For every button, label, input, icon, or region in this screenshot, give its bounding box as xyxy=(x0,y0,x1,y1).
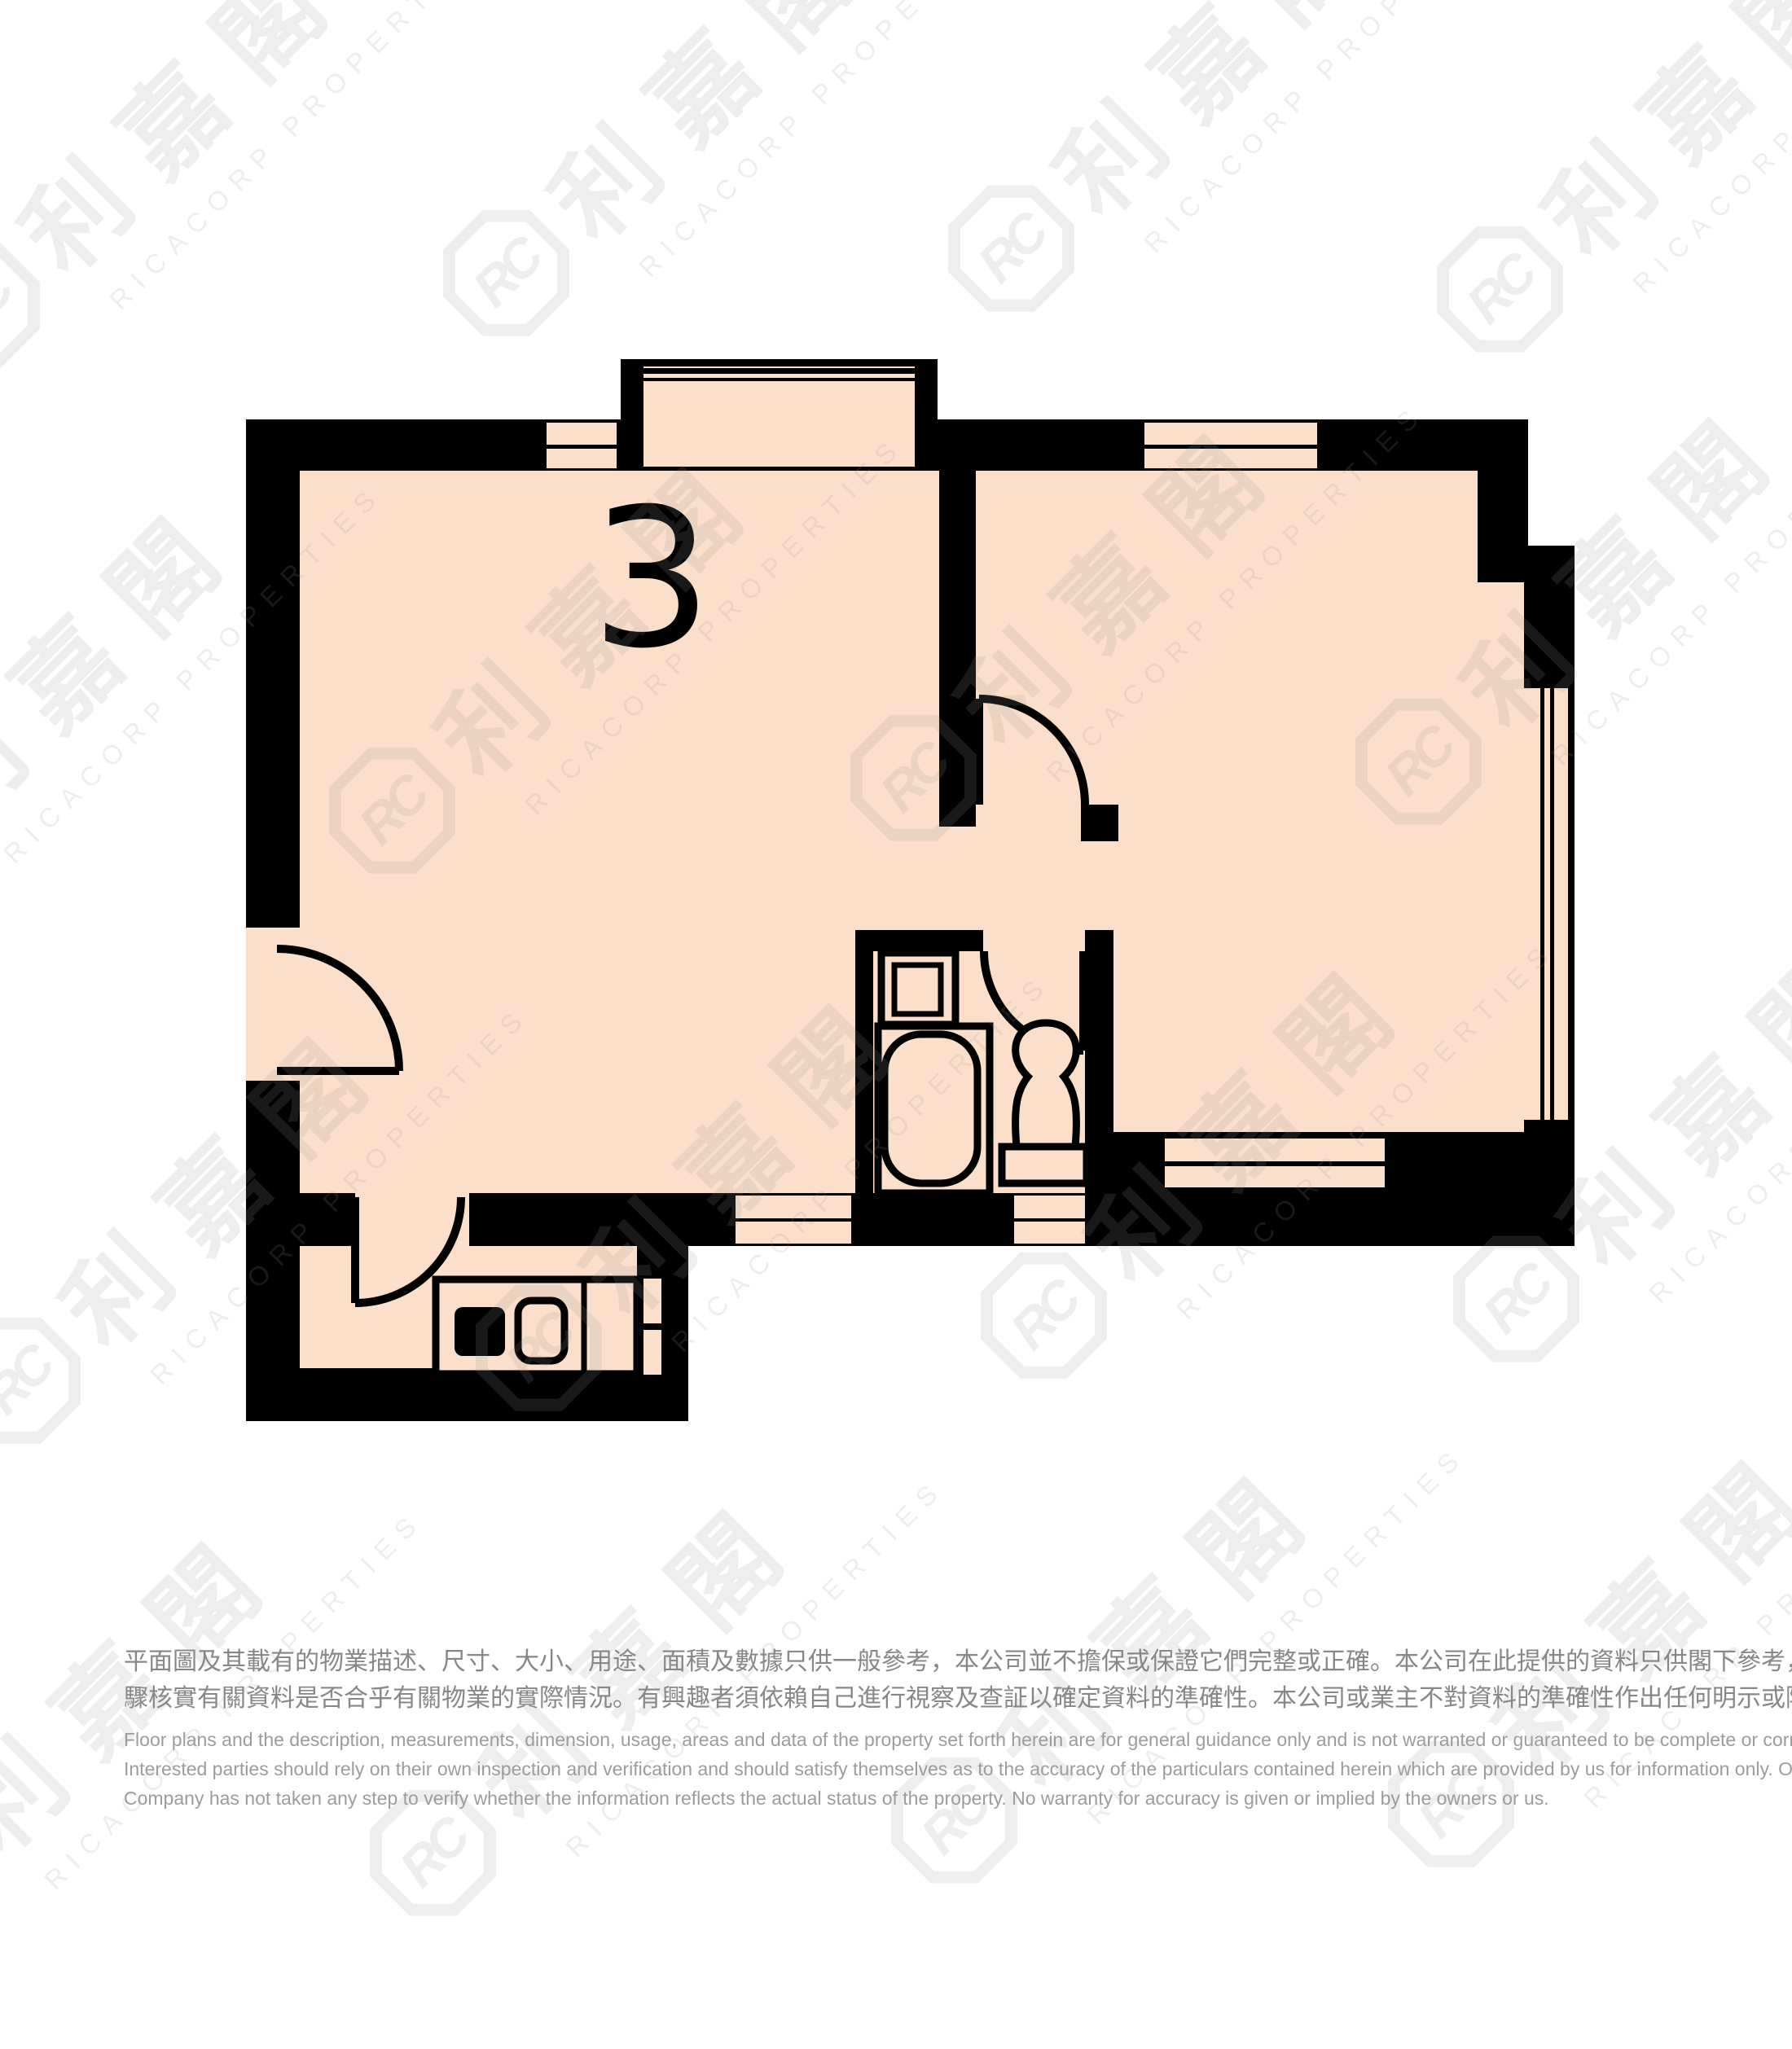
disclaimer-block: 平面圖及其載有的物業描述、尺寸、大小、用途、面積及數據只供一般參考，本公司並不擔… xyxy=(124,1643,1720,1813)
disclaimer-cn-line-2: 驟核實有關資料是否合乎有關物業的實際情況。有興趣者須依賴自己進行視察及查証以確定… xyxy=(124,1680,1720,1717)
disclaimer-en-line-1: Floor plans and the description, measure… xyxy=(124,1725,1720,1754)
bottom-window-living-slot-2 xyxy=(736,1222,851,1244)
right-bay-frame-top xyxy=(1524,662,1575,688)
bathroom-left-wall xyxy=(855,930,873,1193)
top-window-left-slot-1 xyxy=(547,423,617,445)
kitchen-window-slot-2 xyxy=(643,1330,661,1375)
bedroom-door-stub xyxy=(1081,805,1118,841)
bedroom-window-slot-2 xyxy=(1165,1166,1385,1187)
top-bay-glazing-line-2 xyxy=(643,378,915,381)
floor-plan-page: { "page": {"width": 2200, "height": 2200… xyxy=(0,0,1792,1792)
left-wall xyxy=(246,419,300,1421)
top-window-right-slot-2 xyxy=(1144,449,1317,468)
bedroom-window-slot-1 xyxy=(1165,1139,1385,1161)
right-wall-lower xyxy=(1524,1146,1575,1246)
kitchen-sink-icon xyxy=(518,1301,564,1361)
disclaimer-cn-line-1: 平面圖及其載有的物業描述、尺寸、大小、用途、面積及數據只供一般參考，本公司並不擔… xyxy=(124,1643,1720,1680)
top-bay-glazing-line-1 xyxy=(643,368,915,374)
bottom-window-living-slot-1 xyxy=(736,1196,851,1218)
bathroom-top-wall xyxy=(855,930,983,951)
right-bay-glazing-line-1 xyxy=(1540,688,1544,1120)
top-window-right-slot-1 xyxy=(1144,423,1317,445)
right-bay-outer-edge xyxy=(1568,688,1575,1120)
bottom-window-bath-slot-2 xyxy=(1014,1222,1085,1244)
bottom-window-bath-slot-1 xyxy=(1014,1196,1085,1218)
stove-icon xyxy=(455,1307,505,1356)
unit-number-label: 3 xyxy=(591,468,713,691)
right-wall-step xyxy=(1478,546,1575,582)
toilet-base-icon xyxy=(1002,1147,1087,1183)
right-bay-glazing-line-2 xyxy=(1550,688,1554,1120)
top-bay-opening xyxy=(643,419,915,471)
kitchen-fixtures xyxy=(436,1279,637,1374)
top-window-left-slot-2 xyxy=(547,449,617,468)
apartment-floor-area xyxy=(246,359,1575,1421)
top-bay-frame-top xyxy=(621,359,938,366)
top-bay-frame-right xyxy=(915,359,938,471)
kitchen-window-slot-1 xyxy=(643,1279,661,1323)
living-bedroom-divider-wall xyxy=(939,471,976,827)
disclaimer-en-line-2: Interested parties should rely on their … xyxy=(124,1754,1720,1784)
floor-plan-drawing: 3 xyxy=(0,0,1792,1792)
right-bay-frame-bottom xyxy=(1524,1120,1575,1146)
top-bay-frame-left xyxy=(621,359,643,471)
toilet-bowl-icon xyxy=(1016,1023,1077,1147)
disclaimer-en-line-3: Company has not taken any step to verify… xyxy=(124,1784,1720,1813)
